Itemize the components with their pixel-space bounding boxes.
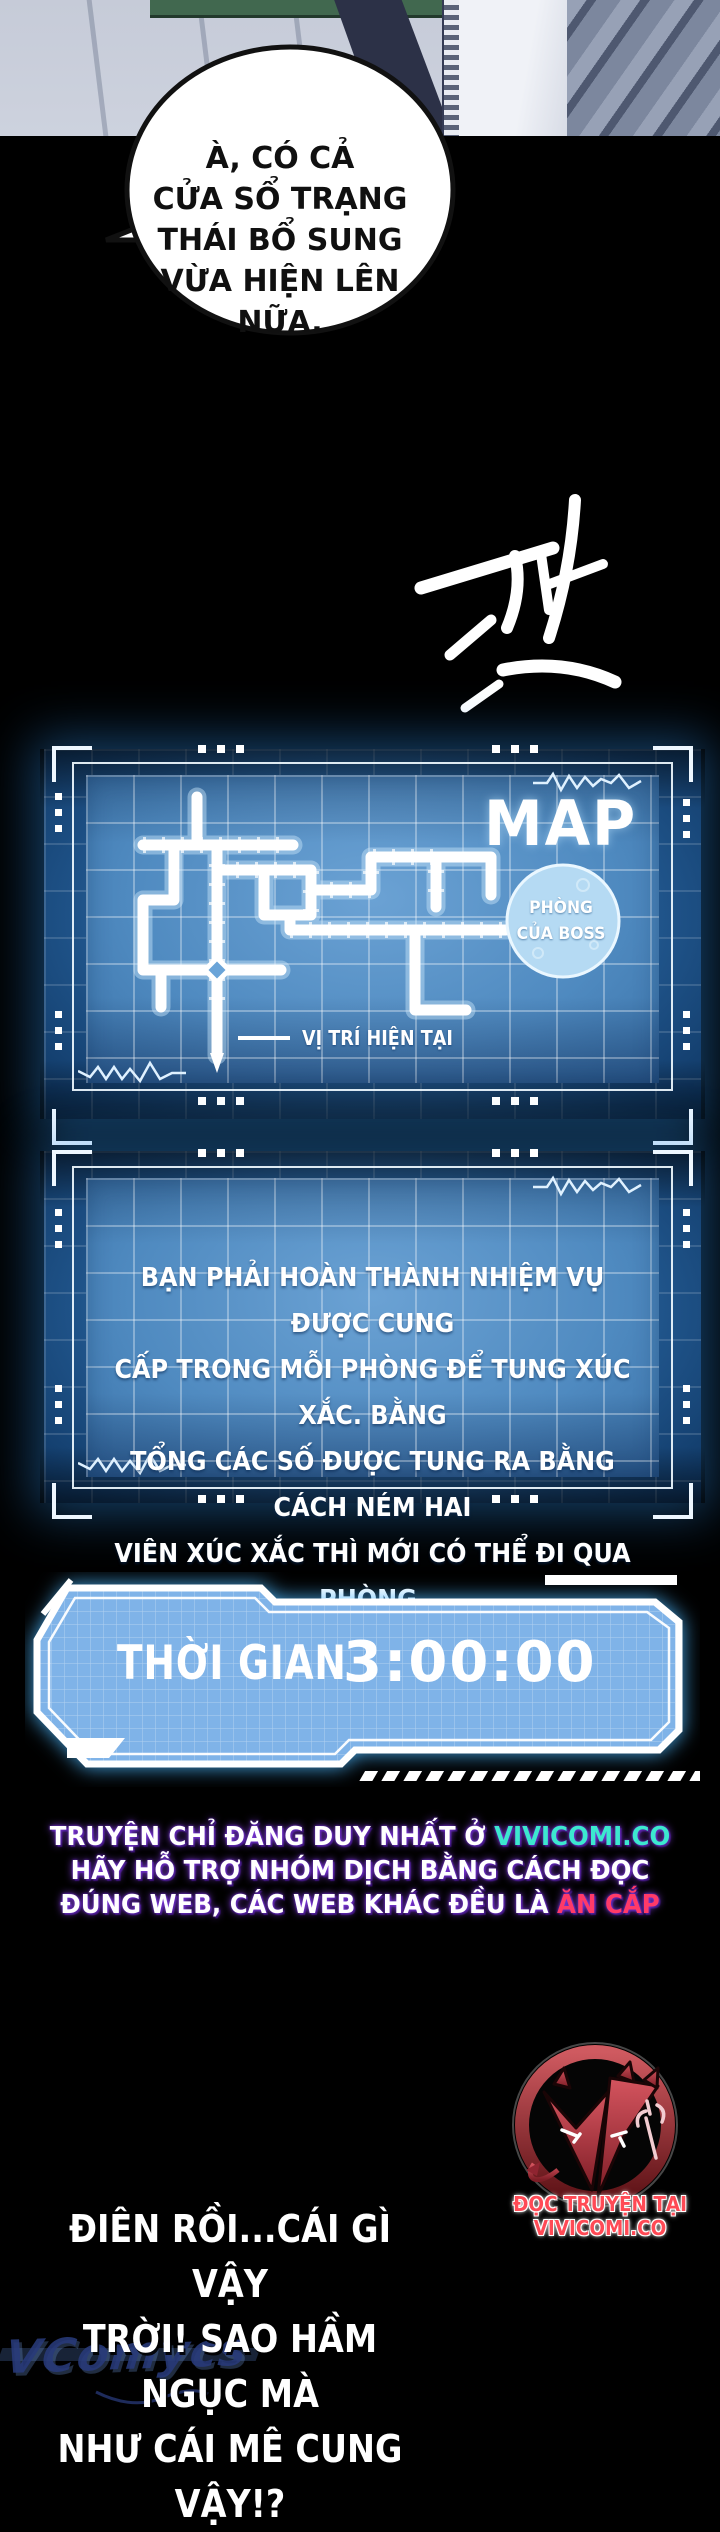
- bottom-dialogue: ĐIÊN RỒI...CÁI GÌ VẬY TRỜI! SAO HẦM NGỤC…: [45, 2202, 415, 2532]
- dots-icon: [492, 1149, 538, 1157]
- stone-steps: [567, 0, 720, 136]
- credit-line-3: ĐÚNG WEB, CÁC WEB KHÁC ĐỀU LÀ ĂN CẮP: [22, 1888, 699, 1922]
- timer-label: THỜI GIAN: [117, 1636, 347, 1691]
- current-position-label: VỊ TRÍ HIỆN TẠI: [238, 1026, 473, 1050]
- dots-icon: [492, 1097, 538, 1105]
- white-jacket: [459, 0, 567, 136]
- corner-bracket-icon: [653, 1109, 693, 1145]
- dots-icon: [683, 1011, 690, 1050]
- dots-icon: [492, 745, 538, 753]
- dots-icon: [683, 799, 690, 838]
- timer-panel: THỜI GIAN 3:00:00: [25, 1572, 700, 1787]
- corner-bracket-icon: [52, 1109, 92, 1145]
- dots-icon: [55, 1385, 62, 1424]
- dots-icon: [55, 793, 62, 832]
- boss-room-label: PHÒNG CỦA BOSS: [500, 895, 621, 947]
- site-name: VIVICOMI.CO: [494, 1822, 670, 1852]
- logo-caption: ĐỌC TRUYỆN TẠI VIVICOMI.CO: [479, 2192, 720, 2240]
- top-cap-bar: [545, 1575, 677, 1585]
- credit-line-1: TRUYỆN CHỈ ĐĂNG DUY NHẤT Ở VIVICOMI.CO: [22, 1820, 699, 1854]
- translator-credits: TRUYỆN CHỈ ĐĂNG DUY NHẤT Ở VIVICOMI.CO H…: [22, 1820, 699, 1922]
- dots-icon: [198, 1149, 244, 1157]
- speech-bubble-text: À, CÓ CẢ CỬA SỔ TRẠNG THÁI BỔ SUNG VỪA H…: [130, 138, 430, 343]
- map-panel: MAP PHÒNG CỦA BOSS VỊ TRÍ HIỆN TẠI: [40, 743, 705, 1145]
- rules-text: BẠN PHẢI HOÀN THÀNH NHIỆM VỤ ĐƯỢC CUNG C…: [113, 1255, 633, 1623]
- pointer-dash-icon: [238, 1036, 290, 1040]
- dots-icon: [683, 1385, 690, 1424]
- warning-word: ĂN CẮP: [557, 1890, 660, 1920]
- zigzag-icon: [533, 1173, 643, 1199]
- dots-icon: [683, 1209, 690, 1248]
- credit-line-2: HÃY HỖ TRỢ NHÓM DỊCH BẰNG CÁCH ĐỌC: [22, 1854, 699, 1888]
- timer-value: 3:00:00: [343, 1630, 597, 1695]
- dots-icon: [55, 1209, 62, 1248]
- rules-panel: BẠN PHẢI HOÀN THÀNH NHIỆM VỤ ĐƯỢC CUNG C…: [40, 1147, 705, 1519]
- sfx-brush-stroke: [403, 470, 623, 720]
- dots-icon: [198, 745, 244, 753]
- dots-icon: [55, 1011, 62, 1050]
- dots-icon: [198, 1097, 244, 1105]
